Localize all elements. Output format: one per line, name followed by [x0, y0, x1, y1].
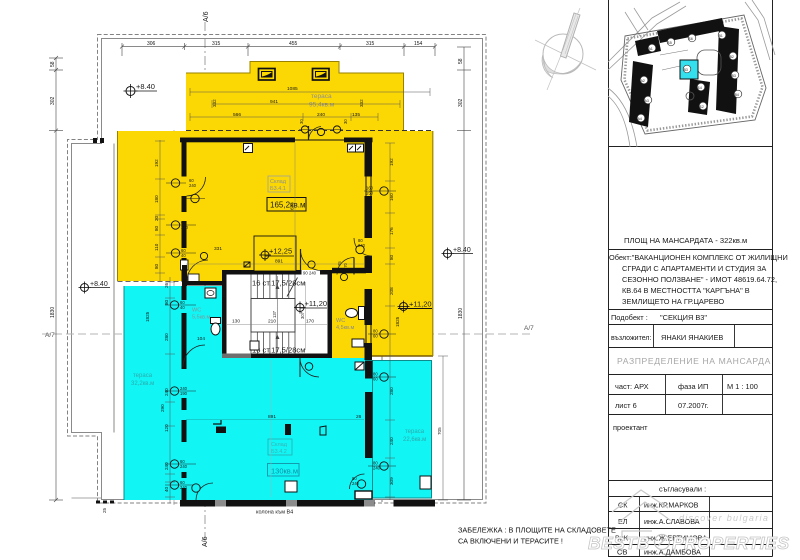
svg-text:104: 104	[197, 336, 205, 342]
svg-text:фаза ИП: фаза ИП	[678, 382, 708, 391]
svg-text:07.2007г.: 07.2007г.	[678, 401, 709, 410]
svg-text:332: 332	[212, 99, 217, 107]
svg-text:135: 135	[352, 112, 360, 118]
svg-text:302: 302	[458, 98, 464, 107]
svg-text:240: 240	[352, 481, 360, 486]
svg-text:240: 240	[358, 243, 366, 248]
svg-text:240: 240	[181, 225, 189, 230]
svg-text:176: 176	[389, 227, 394, 235]
svg-text:309: 309	[389, 477, 394, 485]
svg-text:Обект:"ВАКАНЦИОНЕН КОМПЛЕКС: Обект:"ВАКАНЦИОНЕН КОМПЛЕКС ОТ ЖИЛИЩНИ	[609, 253, 788, 262]
svg-text:ПЛОЩ НА МАНСАРДАТА - 322к: ПЛОЩ НА МАНСАРДАТА - 322кв.м	[624, 236, 747, 245]
svg-text:240: 240	[189, 183, 197, 188]
svg-text:5,5кв.м: 5,5кв.м	[192, 315, 211, 321]
svg-text:А3: А3	[645, 99, 649, 103]
svg-text:А1: А1	[649, 47, 653, 51]
svg-text:4,5кв.м: 4,5кв.м	[336, 325, 355, 331]
svg-text:А/7: А/7	[524, 325, 534, 332]
svg-text:1830: 1830	[458, 308, 464, 319]
svg-text:Б3.4.2: Б3.4.2	[271, 449, 287, 455]
svg-text:40: 40	[164, 486, 169, 492]
svg-text:210: 210	[268, 319, 276, 325]
svg-text:192: 192	[389, 158, 394, 166]
svg-text:WC: WC	[336, 318, 345, 324]
svg-text:240: 240	[309, 271, 317, 276]
svg-text:СК: СК	[618, 501, 628, 510]
svg-text:В4: В4	[735, 93, 739, 97]
svg-text:110: 110	[154, 243, 159, 251]
svg-text:80: 80	[154, 225, 159, 231]
svg-text:Б2: Б2	[700, 105, 704, 109]
svg-text:240: 240	[317, 112, 325, 118]
svg-text:тераса: тераса	[133, 373, 153, 379]
svg-text:160: 160	[389, 193, 394, 201]
svg-text:30: 30	[343, 119, 348, 124]
svg-text:16 ст.17,5/28см: 16 ст.17,5/28см	[252, 346, 305, 355]
svg-text:В1: В1	[719, 34, 723, 38]
svg-text:Б3.4.1: Б3.4.1	[270, 186, 286, 192]
svg-text:А/6: А/6	[202, 536, 209, 547]
svg-text:40: 40	[181, 253, 186, 258]
svg-text:тераса: тераса	[405, 429, 425, 435]
svg-text:891: 891	[275, 259, 283, 265]
svg-text:ЯНАКИ ЯНАКИЕВ: ЯНАКИ ЯНАКИЕВ	[661, 333, 723, 342]
svg-text:"СЕКЦИЯ В3": "СЕКЦИЯ В3"	[660, 313, 707, 322]
svg-text:40: 40	[180, 305, 185, 310]
svg-text:РАЗПРЕДЕЛЕНИЕ НА МАНСАРДА: РАЗПРЕДЕЛЕНИЕ НА МАНСАРДА	[617, 356, 771, 366]
svg-text:съгласували :: съгласували :	[659, 485, 706, 494]
svg-text:колона към В4: колона към В4	[256, 510, 293, 516]
svg-text:WC: WC	[192, 308, 201, 314]
svg-text:PROPERTIES: PROPERTIES	[672, 533, 790, 553]
svg-text:95,4кв.м: 95,4кв.м	[309, 102, 335, 109]
svg-text:проектант: проектант	[613, 423, 648, 432]
svg-text:58: 58	[50, 61, 56, 67]
svg-text:120: 120	[164, 424, 169, 432]
svg-text:Склад: Склад	[271, 442, 288, 448]
svg-text:26: 26	[356, 414, 362, 420]
svg-text:180: 180	[154, 195, 159, 203]
svg-text:240: 240	[373, 466, 381, 471]
svg-text:192: 192	[154, 159, 159, 167]
svg-text:В3: В3	[684, 68, 688, 72]
svg-text:1830: 1830	[50, 307, 56, 318]
svg-text:150: 150	[366, 191, 374, 196]
svg-text:20: 20	[154, 215, 159, 221]
svg-text:Склад: Склад	[270, 179, 287, 185]
svg-text:80: 80	[154, 263, 159, 269]
svg-text:566: 566	[233, 112, 241, 118]
svg-text:315: 315	[366, 41, 375, 47]
svg-text:154: 154	[414, 41, 423, 47]
svg-text:315: 315	[212, 41, 221, 47]
svg-text:190: 190	[180, 391, 188, 396]
svg-text:705: 705	[437, 427, 442, 435]
svg-text:80: 80	[389, 254, 394, 260]
svg-text:ЗЕМЛИЩЕТО НА ГР.ЦАРЕВО: ЗЕМЛИЩЕТО НА ГР.ЦАРЕВО	[622, 297, 724, 306]
svg-text:891: 891	[268, 414, 276, 420]
svg-text:302: 302	[50, 96, 56, 105]
svg-text:331: 331	[214, 246, 222, 252]
svg-text:80: 80	[164, 299, 169, 305]
svg-text:BESTB: BESTB	[588, 533, 650, 553]
svg-text:633: 633	[290, 202, 295, 210]
svg-text:137: 137	[272, 310, 277, 318]
svg-text:26: 26	[164, 282, 169, 288]
svg-text:75: 75	[337, 261, 342, 266]
svg-text:+8.40: +8.40	[90, 281, 108, 288]
svg-text:+8.40: +8.40	[453, 247, 471, 254]
svg-text:280: 280	[389, 387, 394, 395]
svg-text:СЕЗОННО ПОЛЗВАНЕ" - ИМОТ 4: СЕЗОННО ПОЛЗВАНЕ" - ИМОТ 48619.64.72,	[622, 275, 777, 284]
svg-text:тераса: тераса	[311, 93, 332, 100]
svg-text:Подобект :: Подобект :	[611, 313, 648, 322]
svg-text:170: 170	[306, 319, 314, 325]
svg-text:1085: 1085	[287, 86, 298, 92]
svg-text:1825: 1825	[145, 311, 150, 322]
svg-text:част: АРХ: част: АРХ	[615, 382, 649, 391]
svg-text:В2: В2	[730, 55, 734, 59]
svg-text:130: 130	[232, 319, 240, 325]
svg-text:А4: А4	[638, 117, 642, 121]
svg-text:58: 58	[458, 58, 464, 64]
svg-text:240: 240	[164, 388, 169, 396]
svg-text:+11,20: +11,20	[305, 299, 328, 308]
svg-text:инж.КР.МАРКОВ: инж.КР.МАРКОВ	[644, 501, 699, 510]
svg-text:130кв.м: 130кв.м	[271, 467, 298, 476]
svg-text:941: 941	[270, 99, 278, 105]
svg-text:М 1 : 100: М 1 : 100	[727, 382, 758, 391]
svg-text:290: 290	[160, 404, 165, 412]
svg-text:+12,25: +12,25	[269, 247, 292, 256]
svg-text:25: 25	[102, 507, 107, 513]
svg-text:306: 306	[147, 41, 156, 47]
svg-text:16 ст.17,5/28см: 16 ст.17,5/28см	[252, 279, 305, 288]
svg-text:332: 332	[359, 99, 364, 107]
svg-text:90: 90	[303, 271, 308, 276]
svg-text:Б5: Б5	[668, 41, 672, 45]
svg-text:32,2кв.м: 32,2кв.м	[131, 381, 154, 387]
svg-text:В3: В3	[732, 74, 736, 78]
svg-text:240: 240	[389, 437, 394, 445]
svg-text:СА ВКЛЮЧЕНИ И ТЕРАСИТЕ !: СА ВКЛЮЧЕНИ И ТЕРАСИТЕ !	[458, 537, 563, 546]
svg-text:168: 168	[221, 290, 226, 298]
svg-text:60: 60	[373, 377, 378, 382]
svg-text:240: 240	[164, 462, 169, 470]
svg-text:А/7: А/7	[45, 332, 55, 339]
svg-text:22,6кв.м: 22,6кв.м	[403, 437, 426, 443]
svg-text:60: 60	[373, 334, 378, 339]
svg-text:208: 208	[389, 287, 394, 295]
svg-text:КВ.64 В МЕСТНОСТТА "КАРГЪНА: КВ.64 В МЕСТНОСТТА "КАРГЪНА" В	[622, 286, 750, 295]
svg-text:165,2кв.м: 165,2кв.м	[270, 201, 306, 210]
svg-text:240: 240	[180, 485, 188, 490]
svg-text:СГРАДИ С АПАРТАМЕНТИ И СТУ: СГРАДИ С АПАРТАМЕНТИ И СТУДИЯ ЗА	[622, 264, 766, 273]
svg-text:discover bulgaria: discover bulgaria	[679, 513, 769, 523]
svg-text:лист 6: лист 6	[615, 401, 637, 410]
svg-text:Б6: Б6	[689, 37, 693, 41]
svg-text:280: 280	[164, 333, 169, 341]
svg-text:+11,20: +11,20	[409, 300, 432, 309]
svg-text:1825: 1825	[395, 316, 400, 327]
svg-text:240: 240	[180, 464, 188, 469]
svg-text:Б4: Б4	[698, 86, 702, 90]
svg-text:А2: А2	[641, 79, 645, 83]
svg-text:455: 455	[289, 41, 298, 47]
svg-text:+8.40: +8.40	[136, 82, 155, 91]
svg-text:А/6: А/6	[203, 11, 210, 22]
svg-text:307: 307	[300, 311, 305, 319]
svg-text:възложител:: възложител:	[611, 335, 651, 342]
